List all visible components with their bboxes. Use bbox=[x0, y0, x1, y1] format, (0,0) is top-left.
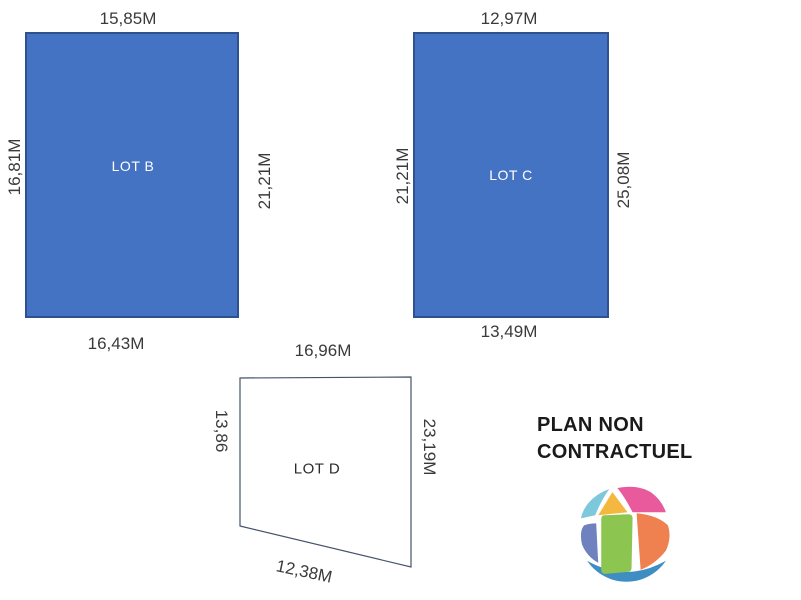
lot-c-dim-right: 25,08M bbox=[614, 152, 634, 209]
lot-b-dim-bottom: 16,43M bbox=[88, 334, 145, 354]
disclaimer: PLAN NON CONTRACTUEL bbox=[537, 412, 693, 466]
globe-logo bbox=[576, 484, 677, 585]
logo-top-right-segment bbox=[617, 487, 665, 513]
lot-b-label: LOT B bbox=[112, 158, 155, 174]
lot-b-dim-left: 16,81M bbox=[5, 139, 25, 196]
logo-right-segment bbox=[637, 513, 670, 570]
lot-shapes-layer bbox=[0, 0, 801, 600]
lot-d-dim-top: 16,96M bbox=[295, 341, 352, 361]
lot-c-dim-bottom: 13,49M bbox=[481, 322, 538, 342]
lot-d-label: LOT D bbox=[294, 461, 340, 478]
disclaimer-line2: CONTRACTUEL bbox=[537, 439, 693, 466]
lot-c-label: LOT C bbox=[489, 167, 532, 183]
logo-center-segment bbox=[601, 514, 632, 574]
lot-d-dim-left: 13,86 bbox=[211, 410, 231, 453]
logo-left-segment bbox=[581, 523, 598, 562]
lot-b-shape bbox=[26, 33, 238, 317]
site-plan: 15,85M 16,81M 21,21M 16,43M LOT B 12,97M… bbox=[0, 0, 801, 600]
lot-b-dim-top: 15,85M bbox=[100, 9, 157, 29]
disclaimer-line1: PLAN NON bbox=[537, 412, 693, 439]
lot-d-dim-right: 23,19M bbox=[419, 419, 439, 476]
lot-b-dim-right: 21,21M bbox=[255, 153, 275, 210]
lot-c-dim-top: 12,97M bbox=[481, 9, 538, 29]
lot-c-dim-left: 21,21M bbox=[393, 148, 413, 205]
